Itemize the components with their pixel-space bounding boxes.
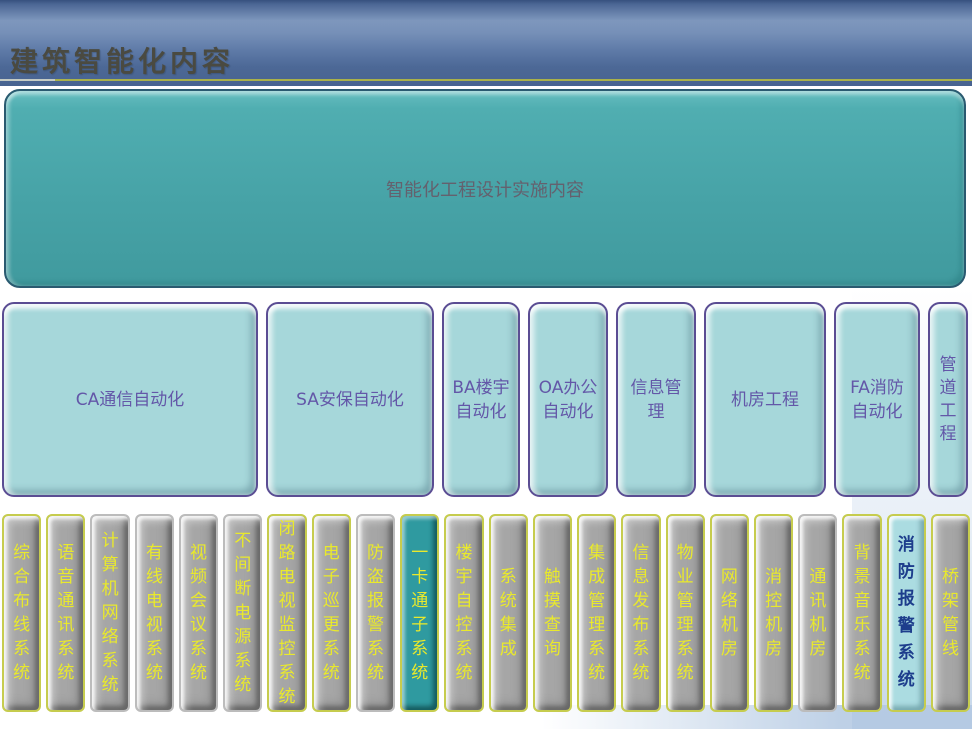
bar-video-conference-system: 视频会议系统 (179, 514, 218, 712)
bar-label: 系统集成 (500, 565, 517, 661)
bar-fire-control-room: 消控机房 (754, 514, 793, 712)
bar-touch-query: 触摸查询 (533, 514, 572, 712)
bar-property-mgmt-system: 物业管理系统 (666, 514, 705, 712)
bar-info-release-system: 信息发布系统 (621, 514, 660, 712)
bar-label: 触摸查询 (544, 565, 561, 661)
bar-fire-alarm-system: 消防报警系统 (887, 514, 926, 712)
mid-box-ba-building: BA楼宇自动化 (442, 302, 520, 497)
mid-box-fa-fire: FA消防自动化 (834, 302, 920, 497)
bar-bridge-pipeline: 桥架管线 (931, 514, 970, 712)
bar-label: 综合布线系统 (13, 541, 30, 685)
mid-box-label: 管道工程 (940, 354, 957, 446)
bar-label: 信息发布系统 (632, 541, 649, 685)
subsystem-row: 综合布线系统 语音通讯系统 计算机网络系统 有线电视系统 视频会议系统 不间断电… (2, 514, 970, 712)
bar-network-room: 网络机房 (710, 514, 749, 712)
bar-label: 计算机网络系统 (102, 529, 119, 697)
bar-label: 闭路电视监控系统 (279, 517, 296, 709)
bar-system-integration: 系统集成 (489, 514, 528, 712)
mid-box-sa-security: SA安保自动化 (266, 302, 434, 497)
page-title: 建筑智能化内容 (10, 40, 234, 80)
bar-label: 集成管理系统 (588, 541, 605, 685)
bar-label: 有线电视系统 (146, 541, 163, 685)
bar-one-card-system: 一卡通子系统 (400, 514, 439, 712)
bar-label: 一卡通子系统 (411, 541, 428, 685)
bar-comm-room: 通讯机房 (798, 514, 837, 712)
mid-box-oa-office: OA办公自动化 (528, 302, 608, 497)
mid-box-label: SA安保自动化 (296, 388, 404, 412)
top-level-box: 智能化工程设计实施内容 (4, 89, 966, 288)
bar-ups-system: 不间断电源系统 (223, 514, 262, 712)
bar-label: 语音通讯系统 (57, 541, 74, 685)
mid-box-label: FA消防自动化 (844, 376, 910, 424)
mid-box-machine-room: 机房工程 (704, 302, 826, 497)
bar-label: 消控机房 (765, 565, 782, 661)
mid-box-label: BA楼宇自动化 (451, 376, 511, 424)
mid-box-label: CA通信自动化 (76, 388, 185, 412)
bar-cable-tv-system: 有线电视系统 (135, 514, 174, 712)
bar-label: 桥架管线 (942, 565, 959, 661)
bar-label: 消防报警系统 (898, 532, 915, 694)
mid-box-ca-communication: CA通信自动化 (2, 302, 258, 497)
bar-label: 网络机房 (721, 565, 738, 661)
bar-computer-network-system: 计算机网络系统 (90, 514, 129, 712)
bar-label: 通讯机房 (809, 565, 826, 661)
bar-label: 电子巡更系统 (323, 541, 340, 685)
bar-label: 不间断电源系统 (234, 529, 251, 697)
bar-integrated-mgmt-system: 集成管理系统 (577, 514, 616, 712)
bar-background-music-system: 背景音乐系统 (842, 514, 881, 712)
mid-box-label: 信息管理 (627, 376, 685, 424)
bar-label: 背景音乐系统 (854, 541, 871, 685)
bar-label: 物业管理系统 (677, 541, 694, 685)
bar-label: 防盗报警系统 (367, 541, 384, 685)
bar-burglar-alarm-system: 防盗报警系统 (356, 514, 395, 712)
mid-box-pipeline: 管道工程 (928, 302, 968, 497)
mid-box-label: 机房工程 (731, 388, 799, 412)
bar-voice-comm-system: 语音通讯系统 (46, 514, 85, 712)
bar-building-control-system: 楼宇自控系统 (444, 514, 483, 712)
top-level-box-label: 智能化工程设计实施内容 (386, 176, 584, 202)
mid-box-info-management: 信息管理 (616, 302, 696, 497)
mid-box-label: OA办公自动化 (537, 376, 599, 424)
header-divider (0, 79, 972, 81)
category-row: CA通信自动化 SA安保自动化 BA楼宇自动化 OA办公自动化 信息管理 机房工… (2, 302, 968, 497)
bar-label: 视频会议系统 (190, 541, 207, 685)
bar-cabling-system: 综合布线系统 (2, 514, 41, 712)
bar-label: 楼宇自控系统 (455, 541, 472, 685)
bar-patrol-system: 电子巡更系统 (312, 514, 351, 712)
bar-cctv-monitoring-system: 闭路电视监控系统 (267, 514, 306, 712)
slide-header-band: 建筑智能化内容 (0, 0, 972, 86)
